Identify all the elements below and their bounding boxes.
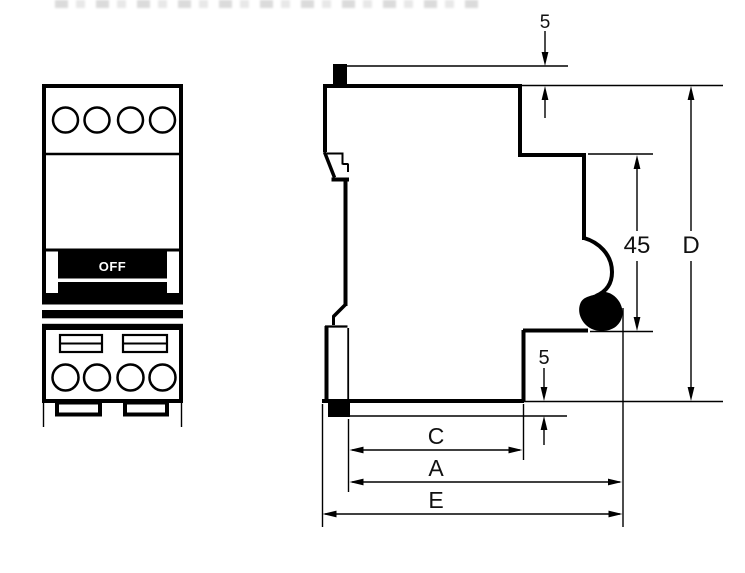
side-view (322, 64, 623, 417)
arrowhead-down (541, 387, 548, 401)
front-bottom-tab-right (125, 403, 167, 415)
dim-bottom-clip-protrusion: 5 (538, 347, 549, 445)
arrowhead-right (608, 479, 622, 486)
bottom-clip-block (328, 402, 350, 417)
arrowhead-up (634, 155, 641, 169)
arrowhead-down (688, 387, 695, 401)
front-band-white-stripe-2 (42, 318, 183, 324)
technical-drawing-page: OFF (0, 0, 745, 573)
front-bottom-tab-left (57, 403, 100, 415)
dim-label-c: C (428, 423, 445, 449)
arrowhead-down (634, 317, 641, 331)
arrowhead-right (609, 511, 623, 518)
arrowhead-down (542, 52, 549, 66)
arrowhead-up (541, 416, 548, 430)
dim-width-c: C (350, 423, 523, 453)
arrowhead-left (323, 511, 337, 518)
arrowhead-up (688, 86, 695, 100)
din-claw-top-diagonal (325, 152, 335, 178)
side-view-reference-lines (323, 66, 724, 527)
dim-label-top-5: 5 (540, 12, 551, 33)
dim-width-e: E (323, 487, 623, 517)
din-claw-bottom-diagonal (334, 305, 346, 317)
front-lower-black-band (46, 293, 179, 330)
arrowhead-left (350, 479, 364, 486)
side-front-bulge-curve (584, 238, 612, 296)
front-band-white-stripe-1 (42, 305, 183, 311)
dim-total-height: D (682, 86, 699, 401)
arrowhead-left (350, 447, 364, 454)
dim-top-clip-protrusion: 5 (540, 12, 551, 118)
toggle-recess-left-notch (46, 252, 58, 294)
arrowhead-right (509, 447, 523, 454)
dim-width-a: A (350, 455, 623, 485)
toggle-handle-groove (58, 279, 167, 283)
dim-label-bottom-5: 5 (538, 347, 549, 369)
toggle-off-label: OFF (99, 259, 127, 274)
dim-label-45: 45 (624, 232, 651, 259)
dim-recess-height: 45 (624, 155, 651, 331)
dim-label-a: A (428, 455, 444, 481)
top-clip-block (333, 64, 347, 86)
dim-label-d: D (682, 232, 699, 259)
front-view: OFF (42, 86, 183, 427)
dim-label-e: E (428, 487, 443, 513)
arrowhead-up (542, 86, 549, 100)
breaker-dimension-drawing: OFF (0, 0, 745, 573)
toggle-recess-right-notch (167, 252, 179, 294)
terminal-clamp-blob (579, 292, 622, 331)
